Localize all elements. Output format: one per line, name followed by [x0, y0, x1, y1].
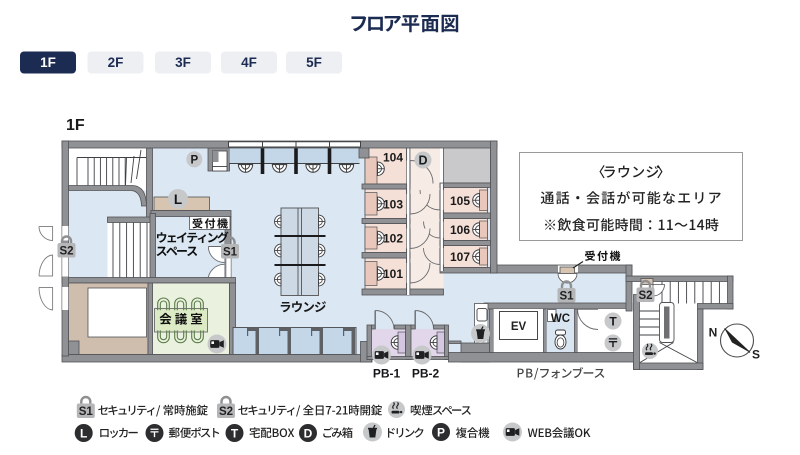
svg-text:N: N: [709, 326, 718, 340]
svg-text:WC: WC: [551, 313, 570, 325]
svg-text:EV: EV: [511, 321, 527, 333]
svg-text:3F: 3F: [175, 55, 191, 70]
svg-text:105: 105: [450, 194, 470, 208]
svg-text:T: T: [231, 427, 239, 441]
svg-text:106: 106: [450, 223, 470, 237]
svg-text:L: L: [80, 427, 87, 441]
svg-text:P: P: [190, 155, 198, 167]
svg-text:1F: 1F: [40, 55, 56, 70]
svg-text:PB-1: PB-1: [373, 367, 401, 381]
svg-text:4F: 4F: [241, 55, 257, 70]
svg-text:2F: 2F: [108, 55, 124, 70]
svg-text:S1: S1: [559, 291, 574, 303]
svg-text:D: D: [304, 427, 313, 441]
svg-text:107: 107: [450, 250, 470, 264]
svg-text:103: 103: [383, 197, 403, 211]
svg-text:S2: S2: [59, 246, 73, 258]
svg-text:104: 104: [383, 151, 403, 165]
svg-text:T: T: [609, 315, 617, 329]
svg-text:D: D: [418, 154, 427, 168]
svg-text:PB-2: PB-2: [412, 367, 440, 381]
svg-text:101: 101: [383, 267, 403, 281]
svg-text:102: 102: [383, 232, 403, 246]
svg-text:S1: S1: [223, 247, 238, 259]
svg-text:S: S: [752, 348, 760, 362]
svg-text:L: L: [174, 192, 182, 207]
svg-text:S2: S2: [638, 290, 652, 302]
svg-text:S1: S1: [79, 406, 94, 418]
svg-text:1F: 1F: [66, 117, 85, 134]
svg-text:S2: S2: [219, 406, 233, 418]
svg-text:5F: 5F: [306, 55, 322, 70]
svg-text:P: P: [437, 426, 445, 440]
